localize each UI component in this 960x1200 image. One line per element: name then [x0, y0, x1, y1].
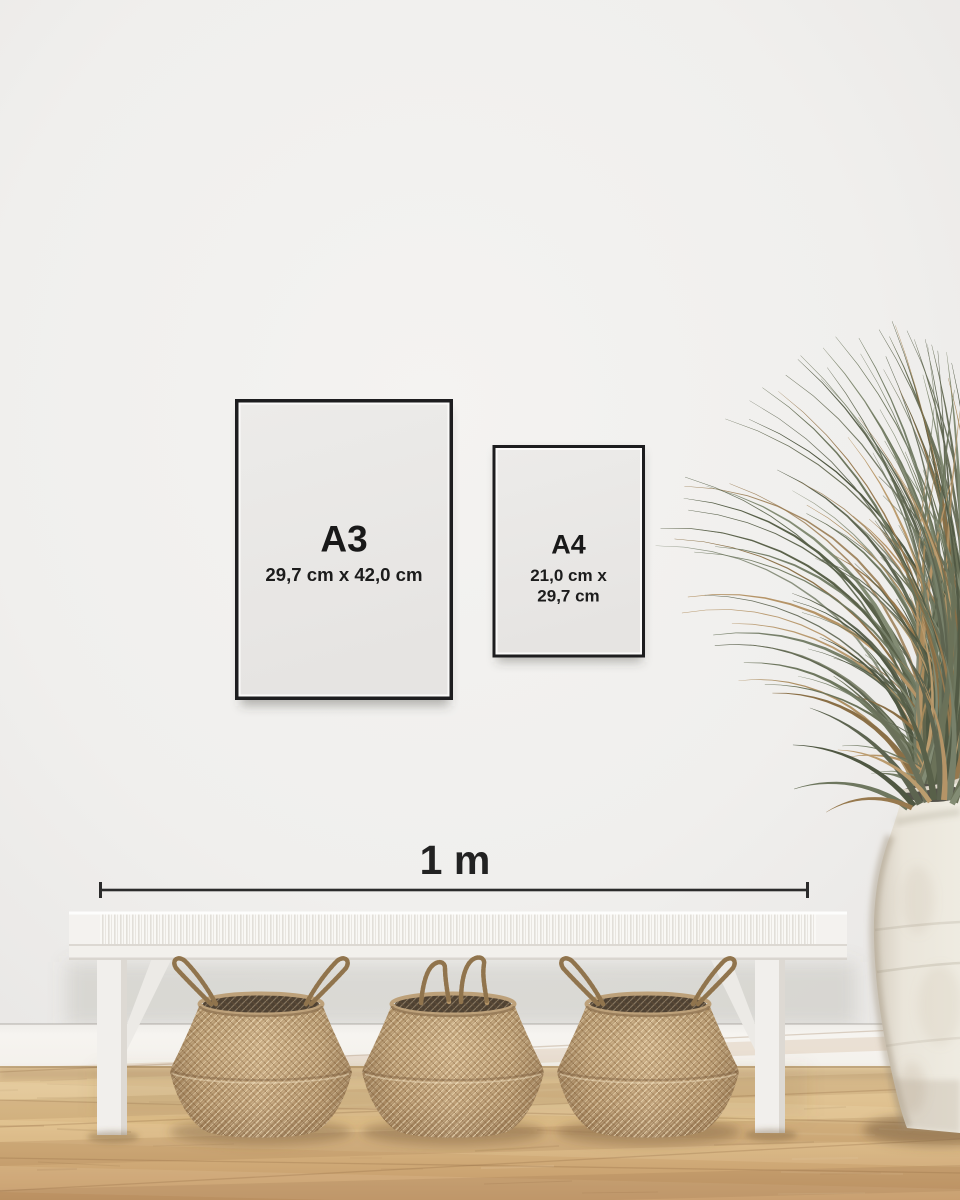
- svg-text:29,7 cm: 29,7 cm: [537, 587, 599, 606]
- svg-text:1 m: 1 m: [420, 837, 491, 883]
- svg-text:21,0 cm x: 21,0 cm x: [530, 566, 607, 585]
- svg-text:29,7 cm x 42,0 cm: 29,7 cm x 42,0 cm: [265, 564, 422, 585]
- svg-text:A3: A3: [320, 519, 367, 560]
- svg-text:A4: A4: [551, 530, 586, 560]
